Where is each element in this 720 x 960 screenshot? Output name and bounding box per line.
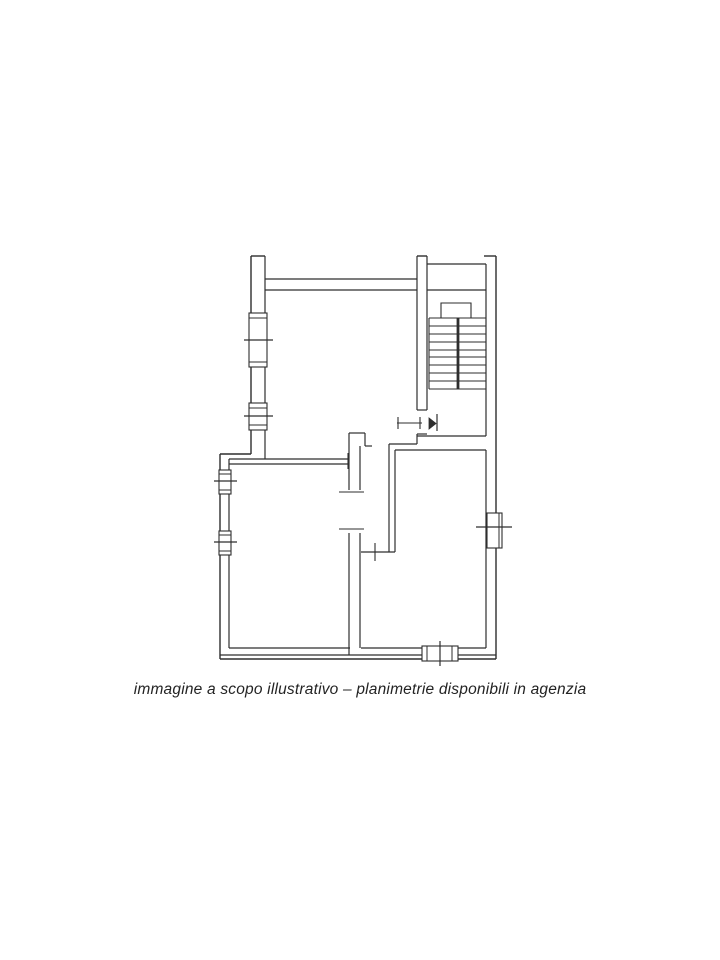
staircase [429,303,486,389]
window-lower-left-1 [214,470,237,494]
window-upper-left-small [244,403,273,430]
windows [214,313,512,666]
window-upper-left-large [244,313,273,367]
entrance-door-symbol [429,414,437,431]
floor-plan-image [0,0,720,960]
caption-text: immagine a scopo illustrativo – planimet… [0,681,720,699]
window-bottom [422,641,458,666]
window-lower-left-2 [214,531,237,555]
floor-plan-drawing [0,0,720,960]
window-right [476,513,512,548]
